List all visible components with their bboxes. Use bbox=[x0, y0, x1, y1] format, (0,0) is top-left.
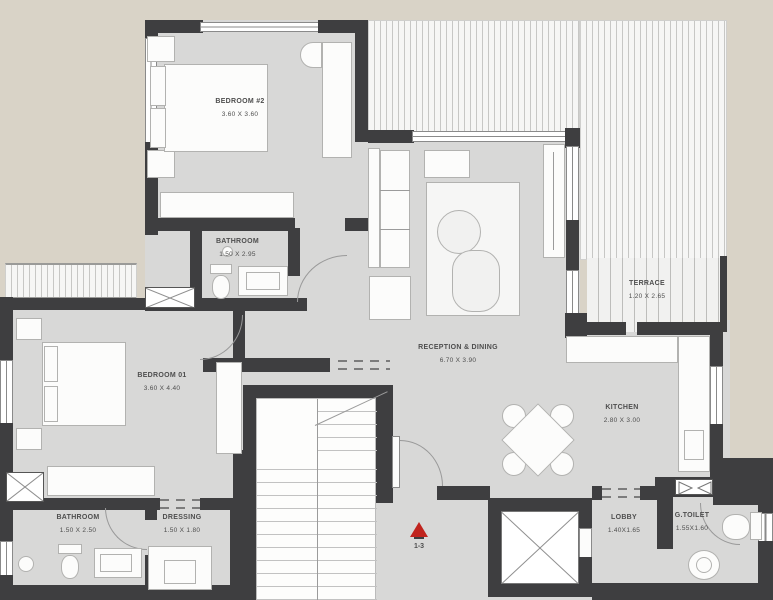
sink-inner bbox=[696, 557, 712, 573]
kitchen-sink bbox=[684, 430, 704, 460]
wall bbox=[368, 130, 414, 143]
shower-vanity-inner bbox=[246, 272, 280, 290]
wall bbox=[566, 220, 579, 272]
window bbox=[0, 541, 13, 577]
tv-console bbox=[543, 144, 565, 258]
room-label-dressing: DRESSING 1.50 X 1.80 bbox=[132, 514, 232, 534]
room-dims: 1.50 X 2.95 bbox=[180, 251, 295, 258]
vanity-inner bbox=[100, 554, 132, 572]
wall bbox=[488, 498, 501, 597]
elevator-cab bbox=[501, 511, 579, 584]
room-name: TERRACE bbox=[597, 280, 697, 287]
section-marker-label: 1-3 bbox=[399, 543, 439, 550]
armchair bbox=[369, 276, 411, 320]
nightstand bbox=[16, 428, 42, 450]
floor-plan: BEDROOM #2 3.60 X 3.60 BATHROOM 1.50 X 2… bbox=[0, 0, 773, 600]
ac-louver bbox=[5, 263, 137, 299]
room-label-bedroom2: BEDROOM #2 3.60 X 3.60 bbox=[170, 98, 310, 118]
wall bbox=[566, 322, 626, 335]
stairs bbox=[256, 398, 376, 600]
room-dims: 6.70 X 3.90 bbox=[388, 357, 528, 364]
opening-dashed bbox=[602, 486, 640, 500]
window bbox=[710, 366, 723, 426]
toilet bbox=[750, 512, 762, 540]
wall bbox=[437, 486, 490, 500]
dresser bbox=[160, 192, 294, 218]
wardrobe bbox=[322, 42, 352, 158]
wall bbox=[488, 498, 592, 511]
nightstand bbox=[147, 150, 175, 178]
duct-shaft bbox=[6, 472, 44, 502]
opening-dashed bbox=[338, 358, 390, 372]
window bbox=[566, 146, 579, 222]
room-dims: 1.50 X 1.80 bbox=[132, 527, 232, 534]
vanity-stool bbox=[300, 42, 322, 68]
room-name: KITCHEN bbox=[572, 404, 672, 411]
pillow bbox=[44, 346, 58, 382]
room-label-reception: RECEPTION & DINING 6.70 X 3.90 bbox=[388, 344, 528, 364]
room-dims: 3.60 X 3.60 bbox=[170, 111, 310, 118]
desk bbox=[47, 466, 155, 496]
room-name: RECEPTION & DINING bbox=[388, 344, 528, 351]
coffee-table bbox=[437, 210, 481, 254]
window bbox=[412, 131, 567, 142]
wall bbox=[565, 128, 580, 148]
room-name: BATHROOM bbox=[28, 514, 128, 521]
wall bbox=[488, 584, 592, 597]
ottoman bbox=[424, 150, 470, 178]
sofa-divider bbox=[380, 190, 410, 191]
window bbox=[566, 270, 579, 315]
room-name: BATHROOM bbox=[180, 238, 295, 245]
window bbox=[200, 22, 320, 32]
wall bbox=[592, 583, 773, 600]
room-label-terrace: TERRACE 1.20 X 2.65 bbox=[597, 280, 697, 300]
toilet bbox=[58, 544, 82, 554]
coffee-table bbox=[452, 250, 500, 312]
room-name: G.TOILET bbox=[652, 512, 732, 519]
section-marker-base bbox=[414, 537, 424, 539]
wall bbox=[233, 450, 245, 502]
sofa-seat bbox=[380, 150, 410, 268]
wall bbox=[345, 218, 368, 231]
room-label-bathroom-lower: BATHROOM 1.50 X 2.50 bbox=[28, 514, 128, 534]
wall bbox=[376, 385, 393, 503]
wall bbox=[720, 256, 727, 332]
door-leaf bbox=[392, 436, 400, 488]
wall bbox=[243, 385, 393, 398]
room-label-bedroom1: BEDROOM 01 3.60 X 4.40 bbox=[92, 372, 232, 392]
room-name: DRESSING bbox=[132, 514, 232, 521]
pergola-stripes bbox=[368, 20, 580, 142]
room-name: BEDROOM #2 bbox=[170, 98, 310, 105]
sofa-back bbox=[368, 148, 380, 268]
room-dims: 3.60 X 4.40 bbox=[92, 385, 232, 392]
duct-shaft bbox=[145, 287, 195, 308]
section-marker-icon bbox=[410, 522, 428, 537]
pillow bbox=[150, 66, 166, 106]
pillow bbox=[44, 386, 58, 422]
pillow bbox=[150, 108, 166, 148]
window bbox=[0, 360, 13, 425]
room-dims: 1.20 X 2.65 bbox=[597, 293, 697, 300]
wall bbox=[12, 298, 147, 310]
room-dims: 2.80 X 3.00 bbox=[572, 417, 672, 424]
room-name: BEDROOM 01 bbox=[92, 372, 232, 379]
opening-dashed bbox=[160, 498, 200, 510]
room-label-kitchen: KITCHEN 2.80 X 3.00 bbox=[572, 404, 672, 424]
nightstand bbox=[147, 36, 175, 62]
tv bbox=[553, 152, 554, 250]
nightstand bbox=[16, 318, 42, 340]
room-label-gtoilet: G.TOILET 1.55X1.60 bbox=[652, 512, 732, 532]
pergola-stripes bbox=[580, 20, 727, 260]
wall bbox=[710, 322, 723, 368]
duct-shaft bbox=[675, 479, 713, 495]
closet-drawer bbox=[164, 560, 196, 584]
wall bbox=[592, 486, 602, 500]
toilet bbox=[210, 264, 232, 274]
bowtie-icon bbox=[676, 480, 713, 495]
toilet-bowl bbox=[212, 275, 230, 299]
room-dims: 1.55X1.60 bbox=[652, 525, 732, 532]
sofa-divider bbox=[380, 229, 410, 230]
floor-lamp bbox=[18, 556, 34, 572]
room-label-bathroom-upper: BATHROOM 1.50 X 2.95 bbox=[180, 238, 295, 258]
toilet-bowl bbox=[61, 555, 79, 579]
room-dims: 1.50 X 2.50 bbox=[28, 527, 128, 534]
wall bbox=[157, 218, 295, 231]
kitchen-counter bbox=[566, 336, 678, 363]
wall bbox=[355, 20, 368, 142]
